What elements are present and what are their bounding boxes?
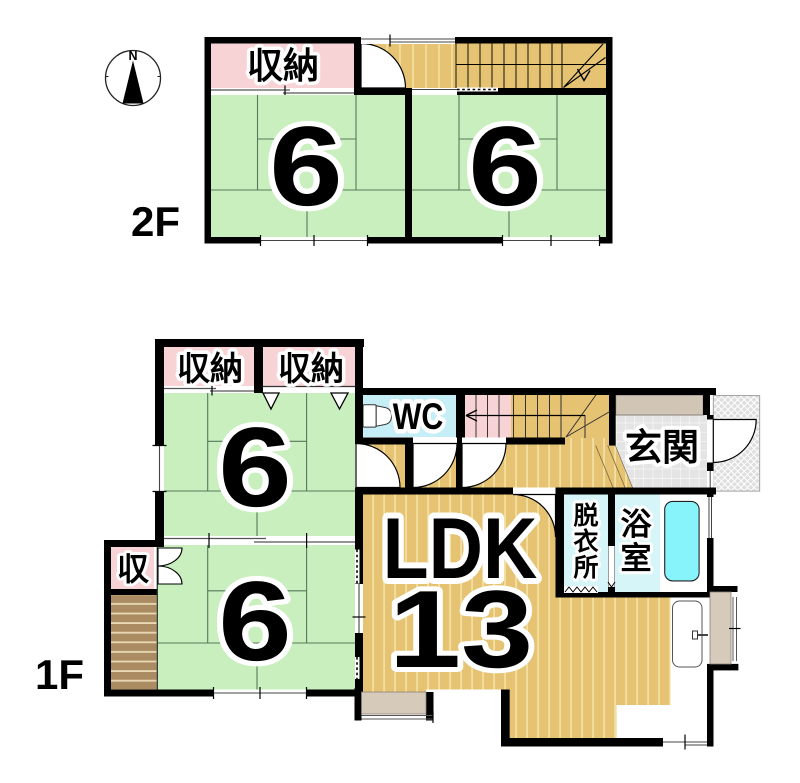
svg-text:衣: 衣 bbox=[573, 527, 598, 556]
svg-text:2F: 2F bbox=[131, 198, 180, 245]
svg-text:6: 6 bbox=[218, 405, 292, 531]
svg-text:13: 13 bbox=[389, 568, 533, 691]
svg-text:収納: 収納 bbox=[278, 350, 344, 387]
svg-text:収納: 収納 bbox=[177, 350, 243, 387]
svg-text:収: 収 bbox=[117, 551, 149, 587]
svg-text:N: N bbox=[128, 49, 137, 63]
svg-text:脱: 脱 bbox=[573, 501, 598, 530]
svg-text:6: 6 bbox=[218, 559, 292, 685]
svg-text:玄関: 玄関 bbox=[625, 427, 699, 468]
svg-text:室: 室 bbox=[621, 541, 652, 576]
svg-text:6: 6 bbox=[269, 104, 343, 230]
svg-text:収納: 収納 bbox=[247, 45, 319, 86]
svg-text:1F: 1F bbox=[35, 651, 84, 698]
svg-text:浴: 浴 bbox=[621, 507, 653, 542]
svg-text:WC: WC bbox=[393, 396, 444, 438]
svg-text:6: 6 bbox=[468, 104, 542, 230]
svg-text:所: 所 bbox=[573, 554, 598, 582]
